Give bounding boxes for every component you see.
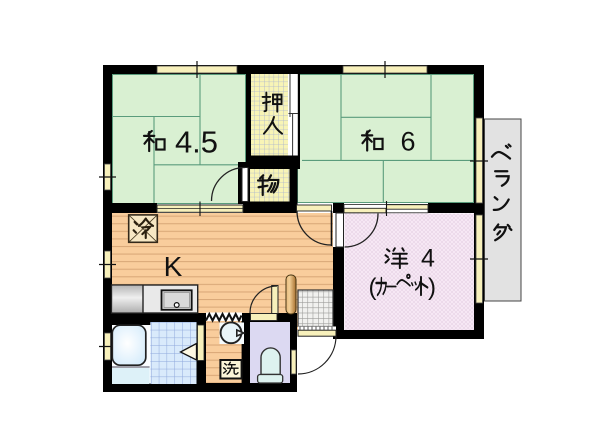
svg-text:4.5: 4.5 <box>175 125 218 160</box>
svg-text:4: 4 <box>421 245 435 273</box>
svg-text:): ) <box>428 274 436 301</box>
svg-text:K: K <box>164 251 183 282</box>
svg-text:6: 6 <box>400 126 415 156</box>
svg-text:(: ( <box>369 274 377 301</box>
